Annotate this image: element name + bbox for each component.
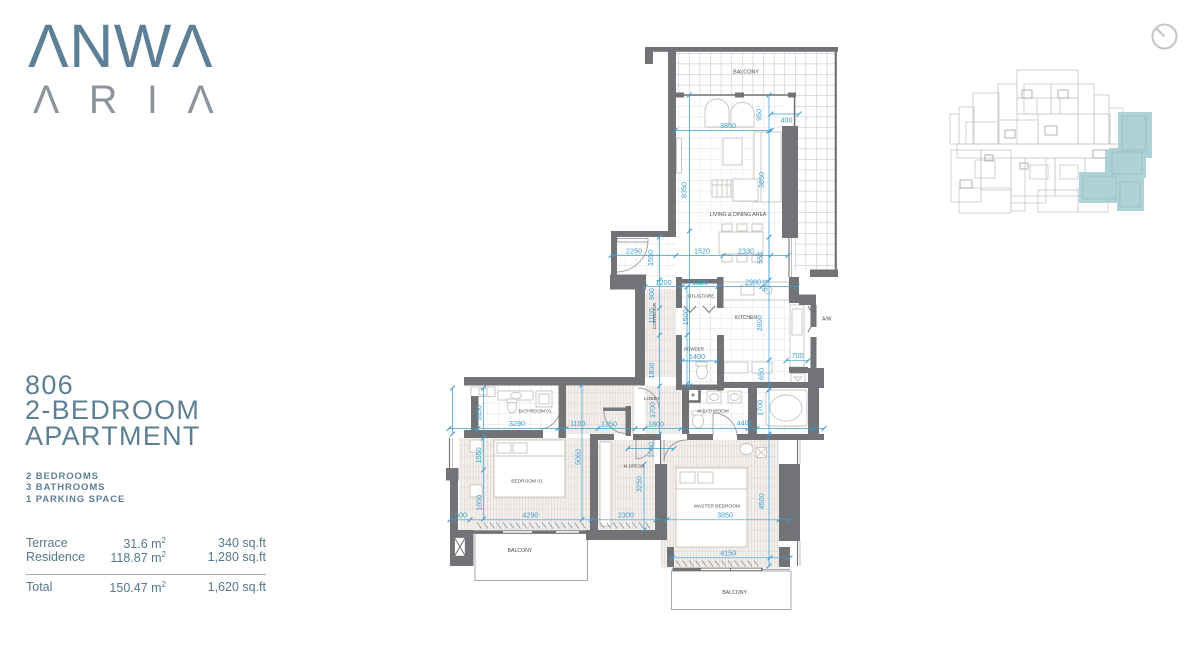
- svg-text:4150: 4150: [720, 549, 736, 558]
- svg-text:1550: 1550: [474, 447, 483, 463]
- svg-text:950: 950: [755, 109, 764, 121]
- svg-text:700: 700: [792, 351, 804, 360]
- svg-text:2300: 2300: [618, 510, 634, 519]
- svg-text:KITCHEN: KITCHEN: [735, 315, 757, 321]
- svg-text:1700: 1700: [756, 400, 765, 416]
- svg-text:1800: 1800: [647, 363, 656, 379]
- svg-text:550: 550: [756, 252, 765, 264]
- svg-text:600: 600: [455, 510, 467, 519]
- svg-text:3850: 3850: [757, 172, 766, 188]
- svg-text:CORRIDOR: CORRIDOR: [652, 302, 658, 329]
- svg-text:BALCONY: BALCONY: [508, 548, 533, 554]
- svg-text:1100: 1100: [570, 419, 585, 428]
- svg-text:2250: 2250: [626, 247, 642, 256]
- svg-text:BEDROOM 01: BEDROOM 01: [511, 479, 543, 485]
- svg-text:4290: 4290: [522, 510, 538, 519]
- svg-text:1090: 1090: [647, 442, 656, 458]
- svg-text:A/W: A/W: [822, 317, 832, 323]
- svg-text:900: 900: [647, 288, 656, 300]
- svg-text:LOBBY: LOBBY: [644, 396, 661, 402]
- svg-text:5060: 5060: [574, 449, 583, 465]
- svg-text:MASTER BEDROOM: MASTER BEDROOM: [694, 504, 740, 510]
- svg-text:1400: 1400: [689, 352, 705, 361]
- svg-text:3850: 3850: [720, 121, 736, 130]
- svg-text:400: 400: [781, 116, 793, 125]
- svg-text:1520: 1520: [694, 247, 710, 256]
- svg-text:BATHROOM 01: BATHROOM 01: [519, 409, 552, 414]
- svg-text:1800: 1800: [648, 420, 664, 429]
- svg-text:2980: 2980: [745, 278, 761, 287]
- svg-text:M.BATHROOM: M.BATHROOM: [697, 409, 728, 414]
- svg-text:1200: 1200: [656, 278, 672, 287]
- svg-text:3290: 3290: [509, 419, 525, 428]
- svg-text:M.DRESS: M.DRESS: [624, 464, 645, 469]
- svg-text:3250: 3250: [635, 476, 644, 492]
- svg-text:4400: 4400: [737, 419, 753, 428]
- svg-text:1800: 1800: [475, 495, 484, 511]
- svg-text:1700: 1700: [648, 402, 657, 418]
- svg-text:2330: 2330: [738, 247, 754, 256]
- svg-text:BALCONY: BALCONY: [722, 590, 747, 596]
- svg-text:550: 550: [761, 280, 770, 292]
- svg-text:8350: 8350: [680, 182, 689, 198]
- svg-text:3850: 3850: [717, 510, 733, 519]
- svg-text:1500: 1500: [681, 309, 690, 325]
- svg-text:1320: 1320: [692, 278, 708, 287]
- svg-text:BALCONY: BALCONY: [733, 70, 759, 76]
- svg-text:1250: 1250: [601, 420, 617, 429]
- svg-text:UTL/STORE: UTL/STORE: [688, 294, 715, 300]
- svg-text:POWDER: POWDER: [684, 347, 704, 352]
- svg-text:1450: 1450: [475, 405, 484, 421]
- svg-text:4500: 4500: [757, 493, 766, 509]
- svg-text:1550: 1550: [646, 250, 655, 266]
- svg-text:LIVING & DINING AREA: LIVING & DINING AREA: [710, 212, 767, 218]
- svg-text:650: 650: [756, 368, 765, 380]
